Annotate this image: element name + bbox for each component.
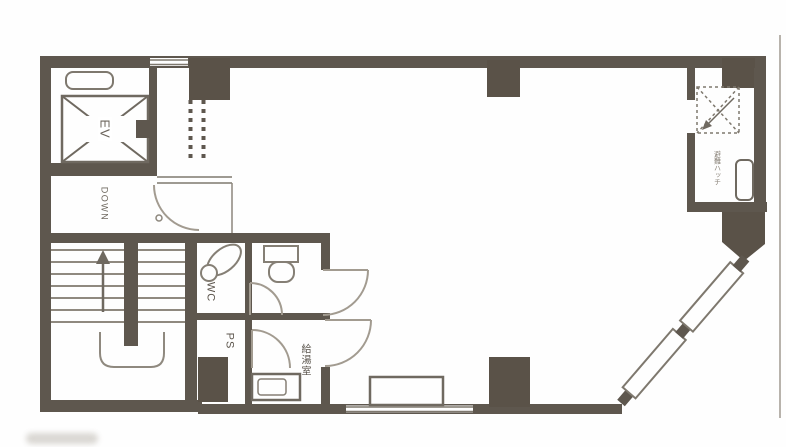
pillars (189, 58, 765, 407)
window-counter-box (370, 377, 443, 405)
san-mid-horizontal-wall (197, 313, 330, 320)
hatch-label: 避難ハッチ (714, 151, 721, 186)
hatch-room-left-wall-a (687, 68, 695, 100)
kitchenette-label: 給湯室 (299, 344, 309, 377)
elevator-label: EV (98, 116, 113, 141)
stair-divider (124, 240, 138, 346)
stair-bottom-wall (40, 400, 202, 412)
stair-right-wall (185, 233, 197, 412)
stair-treads (51, 250, 185, 322)
pipe-shaft-label: PS (224, 333, 235, 350)
stairwell (50, 233, 197, 412)
pillar-top-center (487, 60, 520, 97)
hall-door-knob (156, 215, 162, 221)
pillar-bottom-center (489, 357, 530, 407)
floor-plan-drawing (0, 0, 786, 447)
pillar-top-left (189, 58, 230, 100)
sanitary-entry-door-lower (325, 320, 371, 366)
hatch-ladder (736, 160, 753, 200)
ev-door-mark (136, 120, 150, 138)
roof-hatch-symbol (697, 87, 739, 133)
stairs-down-label: DOWN (100, 187, 109, 222)
ev-counterweight (66, 72, 113, 89)
wc-toilet (201, 239, 246, 282)
pillar-corner-angled (722, 207, 765, 261)
sanitary-entry-door-upper (323, 270, 368, 315)
wc-label: WC (205, 282, 216, 302)
scan-smudge (26, 433, 98, 444)
hatch-room-right-wall (754, 68, 766, 212)
hatch-room (687, 68, 767, 212)
floor-plan: EV DOWN WC PS 給湯室 避難ハッチ (0, 0, 786, 447)
kitchenette-door (252, 330, 290, 368)
bottom-wall-window (346, 406, 473, 413)
diagonal-wall (614, 252, 751, 408)
san-right-wall-c (321, 367, 330, 404)
stair-top-wall (50, 233, 197, 243)
hatch-room-left-wall-b (687, 133, 695, 202)
toilet-room-door (250, 283, 282, 315)
ev-bottom-wall (40, 163, 157, 176)
hall-door (154, 177, 232, 234)
hall-door-arc (154, 185, 199, 230)
diagonal-window-2 (680, 262, 743, 331)
diagonal-window-1 (623, 329, 686, 398)
hatch-arrow (702, 98, 734, 130)
ev-right-wall (149, 68, 157, 166)
top-wall (40, 56, 766, 68)
san-top-wall (197, 233, 330, 243)
stair-direction-arrow (96, 250, 110, 312)
top-wall-window (150, 58, 188, 66)
pillar-top-right (722, 58, 755, 88)
toilet-tank-fixture (264, 246, 298, 282)
left-wall (40, 56, 51, 412)
dotted-opening-lines (191, 100, 204, 162)
san-right-wall-a (321, 233, 330, 270)
pillar-ps (198, 357, 228, 402)
kitchenette-sink (252, 374, 300, 400)
